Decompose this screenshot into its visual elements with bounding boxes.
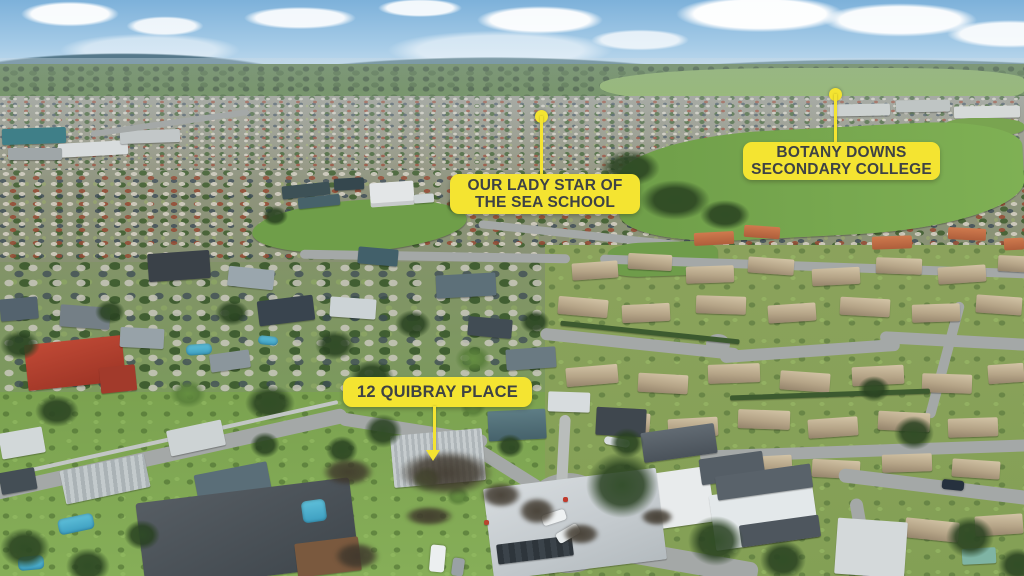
house-roof [467,316,512,339]
white-car [429,544,446,572]
house-roof-tan [882,453,933,473]
house-roof-tan [767,302,816,323]
trailer [451,557,465,576]
industrial-roof [830,103,890,116]
tree [894,416,934,450]
privacy-blur [518,497,556,525]
privacy-blur [480,482,522,508]
house-roof-tan [747,256,794,275]
callout-text-line1: 12 QUIBRAY PLACE [343,383,532,401]
house-roof-tan [738,409,791,430]
carpark [8,148,62,160]
callout-subject-property: 12 QUIBRAY PLACE [343,377,532,407]
callout-text-line2: THE SEA SCHOOL [450,194,640,211]
callout-botany-downs-college: BOTANY DOWNS SECONDARY COLLEGE [743,142,940,180]
callout-text-line1: BOTANY DOWNS [743,144,940,161]
tree [35,395,79,427]
house-roof [147,250,211,282]
privacy-blur [640,508,674,526]
house-roof-terracotta [694,231,735,246]
house-roof-tan [876,257,923,275]
tree [250,432,280,458]
house-roof-tan [948,417,999,438]
house-roof-tan [951,458,1000,479]
house-roof-tan [779,370,830,392]
tree [0,528,50,568]
house-roof-terracotta [744,225,781,239]
arrow-pin-icon [426,450,440,461]
house-roof-tan [807,416,858,438]
industrial-roof [954,105,1020,118]
school-building [369,180,415,207]
house-roof [834,518,908,576]
house-roof-tan [912,303,961,323]
pointer-stem [834,94,837,142]
tree [760,540,806,576]
commercial-roof [2,127,67,145]
house-roof-tan [937,264,986,284]
house-roof [548,391,591,412]
tree [124,520,160,550]
school-building [334,177,365,191]
house-roof [435,272,496,298]
tree [455,345,491,373]
house-roof-tan [622,303,671,323]
house-roof-tan [975,294,1022,315]
tree [315,330,355,360]
house-roof [329,296,376,319]
red-bin [484,520,489,525]
house-roof [357,246,398,266]
house-roof-tan [708,363,761,384]
tree [858,376,890,402]
house-roof-tan [812,267,861,286]
tree [688,516,744,566]
privacy-blur [322,458,374,486]
tree [586,452,658,518]
house-roof-tan [628,253,673,271]
house-roof-tan [840,297,891,318]
house-roof-terracotta [872,235,912,249]
dark-blue-car [942,479,965,491]
house-roof-tan [998,255,1024,273]
school-building [414,193,435,203]
tree [95,300,125,324]
tree [66,548,110,576]
tree [496,434,524,458]
tree [364,414,402,448]
house-roof-terracotta [1004,237,1024,250]
red-bin [563,497,568,502]
industrial-roof [896,100,950,113]
tree [946,516,994,558]
callout-text-line1: OUR LADY STAR OF [450,177,640,194]
house-roof-terracotta [948,227,987,241]
privacy-blur [398,450,494,496]
house-roof [0,296,39,321]
house-roof-tan [686,265,735,284]
callout-text-line2: SECONDARY COLLEGE [743,161,940,178]
tree [0,330,40,360]
swimming-pool [258,335,279,346]
house-roof-tan [638,373,689,395]
house-roof-tan [987,363,1024,384]
house-roof-tan [571,260,618,280]
tree [262,206,288,226]
house-roof [120,327,165,349]
tree [170,380,206,408]
house-roof-tan [696,295,747,315]
swimming-pool [301,498,328,523]
tree [215,300,249,326]
swimming-pool [186,343,213,356]
tree [700,200,750,230]
house-roof-red [99,364,138,394]
house-roof [505,346,556,370]
tree [395,310,431,338]
privacy-blur [562,523,600,545]
aerial-photo: OUR LADY STAR OF THE SEA SCHOOL BOTANY D… [0,0,1024,576]
callout-our-lady-school: OUR LADY STAR OF THE SEA SCHOOL [450,174,640,214]
pointer-stem [433,406,436,451]
privacy-blur [334,542,380,570]
privacy-blur [404,506,454,526]
pointer-stem [540,116,543,174]
